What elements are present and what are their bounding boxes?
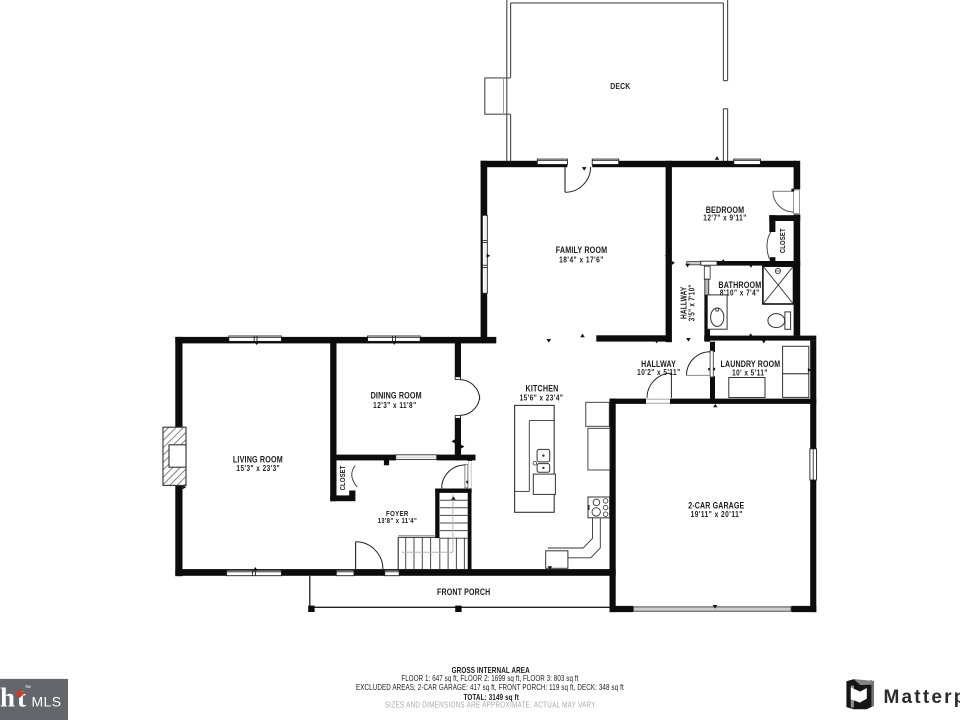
svg-text:™: ™ [25,685,32,692]
svg-text:FAMILY ROOM: FAMILY ROOM [556,245,608,255]
svg-text:DINING ROOM: DINING ROOM [371,391,422,401]
svg-text:10'2" x 5'11": 10'2" x 5'11" [637,367,680,377]
svg-text:FRONT PORCH: FRONT PORCH [437,587,490,597]
svg-text:12'3" x 11'8": 12'3" x 11'8" [373,400,416,410]
svg-text:13'8" x 11'4": 13'8" x 11'4" [378,518,418,526]
svg-text:CLOSET: CLOSET [779,228,787,254]
svg-text:8'10" x 7'4": 8'10" x 7'4" [720,288,760,298]
svg-text:MLS: MLS [32,693,62,709]
svg-text:18'4" x 17'6": 18'4" x 17'6" [559,255,604,265]
svg-text:HALLWAY: HALLWAY [679,287,689,320]
svg-text:FLOOR 1: 647 sq ft, FLOOR 2: 1: FLOOR 1: 647 sq ft, FLOOR 2: 1699 sq ft,… [401,676,578,684]
svg-text:10' x 5'11": 10' x 5'11" [732,368,768,378]
svg-text:CLOSET: CLOSET [339,465,347,491]
svg-text:SIZES AND DIMENSIONS ARE APPRO: SIZES AND DIMENSIONS ARE APPROXIMATE, AC… [385,702,597,710]
svg-text:Matterport: Matterport [884,687,960,708]
svg-text:TOTAL: 3149 sq ft: TOTAL: 3149 sq ft [463,692,519,702]
svg-text:GROSS INTERNAL AREA: GROSS INTERNAL AREA [452,665,531,675]
svg-text:3'5" x 7'10": 3'5" x 7'10" [689,284,697,321]
svg-text:12'7" x 9'11": 12'7" x 9'11" [703,213,746,223]
svg-text:DECK: DECK [610,81,630,91]
svg-text:15'3" x 23'3": 15'3" x 23'3" [236,463,280,473]
svg-text:15'6" x 23'4": 15'6" x 23'4" [520,393,564,403]
svg-text:19'11" x 20'11": 19'11" x 20'11" [691,509,743,519]
